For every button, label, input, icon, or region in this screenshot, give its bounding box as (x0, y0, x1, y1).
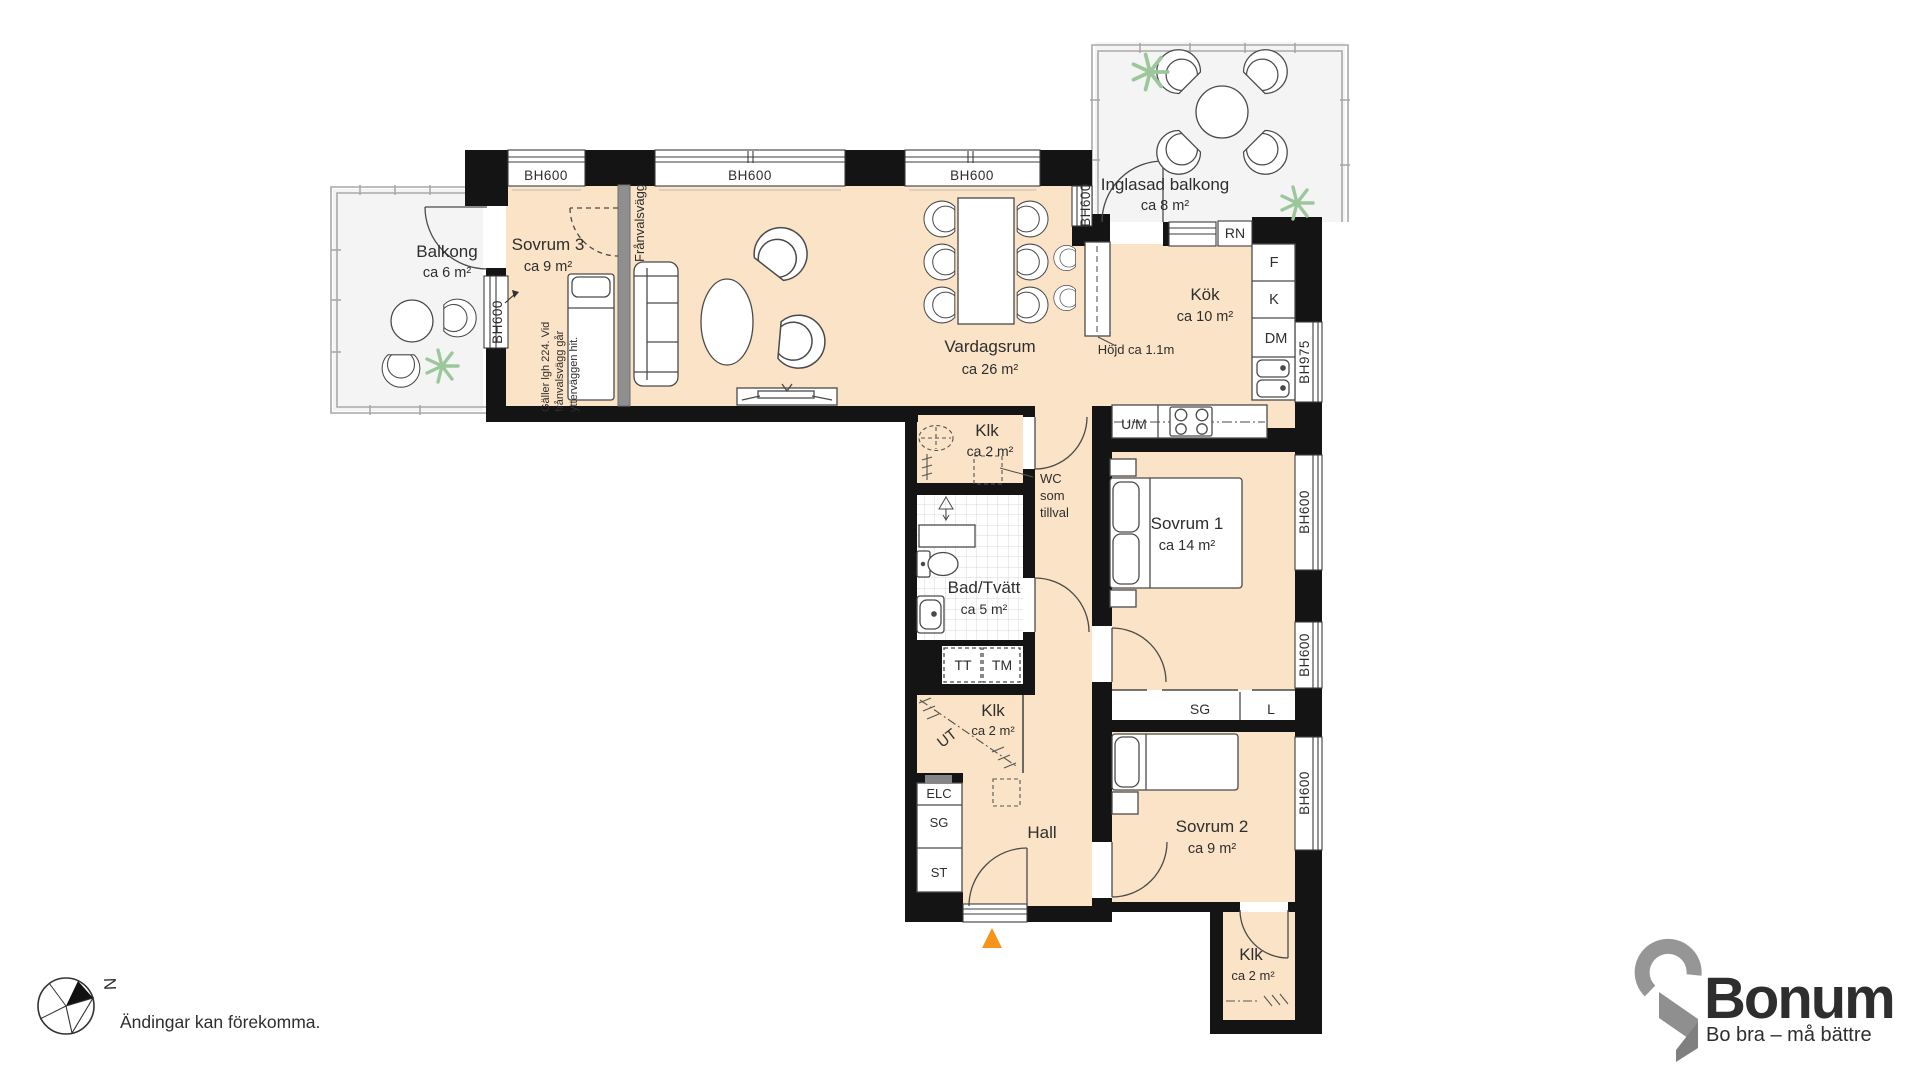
washbasin (917, 596, 944, 633)
label-st: ST (931, 865, 948, 880)
note-line1: Gäller lgh 224. Vid (540, 322, 552, 412)
room-label-klk2: Klk (981, 701, 1005, 720)
stove (1170, 407, 1212, 436)
label-k: K (1269, 292, 1279, 308)
electrical-panel (925, 775, 952, 783)
label-sg-wardrobe: SG (1190, 701, 1210, 717)
room-label-bad: Bad/Tvätt (948, 578, 1021, 597)
room-area-sovrum3: ca 9 m² (524, 259, 573, 275)
floorplan-drawing: Balkong ca 6 m² Sovrum 3 ca 9 m² Vardags… (0, 0, 1920, 1080)
bonum-brand-text: Bonum (1704, 966, 1894, 1031)
wc-option-line2: som (1040, 488, 1065, 503)
closet3-floor (1223, 912, 1295, 1020)
optional-wall (618, 185, 630, 406)
shower-bench (919, 525, 975, 547)
bedside-1a (1110, 459, 1136, 476)
dining-set (924, 198, 1048, 324)
note-line3: ytterväggen hit. (568, 337, 580, 412)
window-label-bh600-balcony: BH600 (490, 300, 505, 344)
bonum-logo: Bonum Bo bra – må bättre (1642, 946, 1894, 1062)
room-area-sovrum2: ca 9 m² (1188, 841, 1237, 857)
window-label-bh600-s1a: BH600 (1297, 490, 1312, 534)
room-label-sovrum1: Sovrum 1 (1151, 514, 1224, 533)
room-area-balkong: ca 6 m² (423, 265, 472, 281)
bedside-2 (1112, 792, 1138, 814)
room-area-vardagsrum: ca 26 m² (962, 362, 1019, 378)
label-rn: RN (1225, 225, 1245, 241)
label-counter-height: Höjd ca 1.1m (1098, 342, 1175, 357)
window-label-bh975: BH975 (1297, 340, 1312, 384)
room-label-klk1: Klk (975, 421, 999, 440)
entrance-door-threshold (963, 904, 1027, 922)
note-line2: frånvalsvägg går (554, 330, 566, 412)
room-area-inglasad: ca 8 m² (1141, 198, 1190, 214)
bonum-logo-mark (1642, 946, 1698, 1062)
sofa (634, 262, 678, 386)
room-area-bad: ca 5 m² (961, 601, 1008, 617)
window-label-bh600-1: BH600 (524, 168, 568, 183)
bar-stool-2 (1054, 285, 1076, 310)
room-area-klk2: ca 2 m² (971, 723, 1015, 738)
room-area-klk3: ca 2 m² (1231, 968, 1275, 983)
room-label-kok: Kök (1190, 285, 1220, 304)
entrance-arrow (982, 928, 1002, 948)
window-kitchen-balcony (1169, 222, 1216, 246)
window-label-bh600-2: BH600 (728, 168, 772, 183)
compass-n-letter: N (100, 977, 119, 990)
window-label-bh600-corner: BH600 (1078, 183, 1093, 227)
label-dm: DM (1265, 331, 1288, 347)
window-label-bh600-s2: BH600 (1297, 771, 1312, 815)
label-franvalsvagg: Frånvalsvägg (632, 184, 647, 262)
bar-stool-1 (1054, 245, 1076, 270)
wc-option-line1: WC (1040, 471, 1062, 486)
compass: N (38, 977, 119, 1034)
room-label-balkong: Balkong (416, 242, 477, 261)
room-label-sovrum3: Sovrum 3 (512, 235, 585, 254)
corridor-floor (1035, 406, 1092, 690)
label-tt: TT (954, 657, 972, 673)
label-f: F (1270, 255, 1279, 271)
label-l: L (1267, 701, 1275, 717)
room-label-sovrum2: Sovrum 2 (1176, 817, 1249, 836)
room-area-klk1: ca 2 m² (967, 443, 1014, 459)
room-label-inglasad: Inglasad balkong (1101, 175, 1230, 194)
room-label-vardagsrum: Vardagsrum (944, 337, 1035, 356)
room-label-hall: Hall (1027, 823, 1056, 842)
window-label-bh600-s1b: BH600 (1297, 633, 1312, 677)
wc-option-line3: tillval (1040, 505, 1069, 520)
bonum-tagline: Bo bra – må bättre (1706, 1024, 1872, 1046)
room-area-kok: ca 10 m² (1177, 309, 1234, 325)
bedside-1b (1110, 590, 1136, 607)
coffee-table (701, 279, 753, 365)
label-sg: SG (930, 815, 949, 830)
window-label-bh600-3: BH600 (950, 168, 994, 183)
disclaimer-text: Ändingar kan förekomma. (120, 1012, 320, 1032)
label-tm: TM (992, 657, 1012, 673)
floorplan-page: Balkong ca 6 m² Sovrum 3 ca 9 m² Vardags… (0, 0, 1920, 1080)
label-elc: ELC (926, 786, 951, 801)
room-label-klk3: Klk (1239, 945, 1263, 964)
bed-bedroom1 (1110, 459, 1242, 607)
room-area-sovrum1: ca 14 m² (1159, 538, 1216, 554)
label-um: U/M (1121, 416, 1147, 432)
toilet (917, 551, 958, 577)
